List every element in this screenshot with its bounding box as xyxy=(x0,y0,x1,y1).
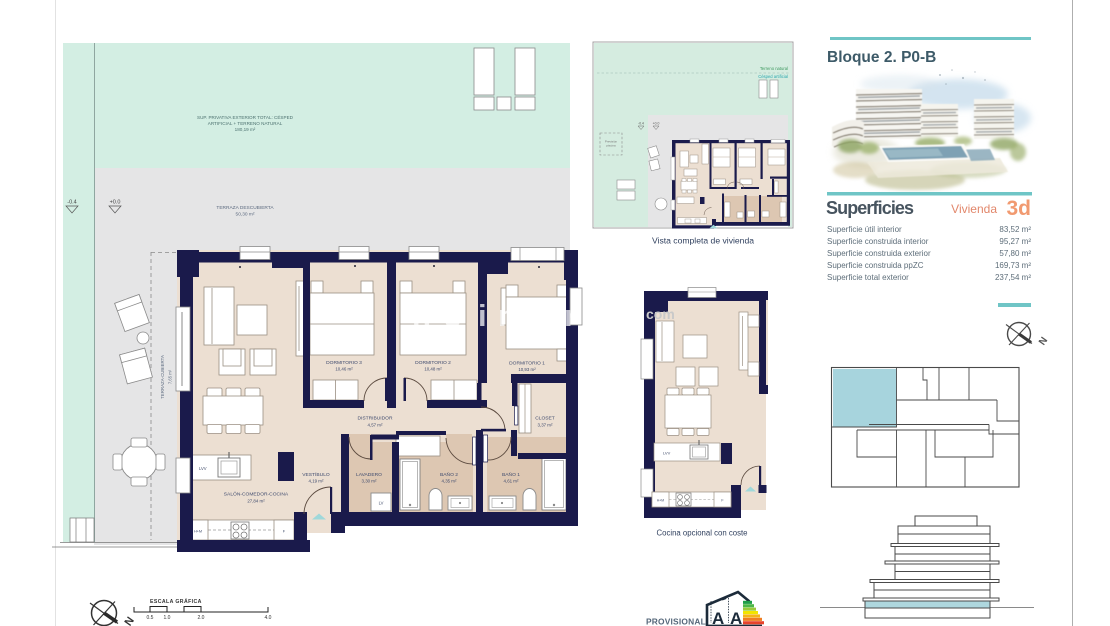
svg-text:v: v xyxy=(533,298,551,333)
svg-text:-0.4: -0.4 xyxy=(638,122,644,126)
svg-text:Superficie total exterior: Superficie total exterior xyxy=(827,273,909,282)
svg-text:Vivienda: Vivienda xyxy=(951,202,997,216)
svg-text:r: r xyxy=(564,298,576,333)
svg-text:n: n xyxy=(412,298,431,333)
svg-text:4,19 m²: 4,19 m² xyxy=(309,479,324,484)
svg-text:50,30 m²: 50,30 m² xyxy=(236,212,255,218)
svg-text:95,27 m²: 95,27 m² xyxy=(999,237,1031,246)
svg-text:Terreno natural: Terreno natural xyxy=(760,66,788,71)
svg-text:DORMITORIO 2: DORMITORIO 2 xyxy=(415,360,451,366)
svg-text:27,84 m²: 27,84 m² xyxy=(247,499,265,504)
svg-text:0.5: 0.5 xyxy=(147,615,154,621)
svg-text:Superficies: Superficies xyxy=(826,198,914,218)
svg-text:PROVISIONAL: PROVISIONAL xyxy=(646,617,706,626)
svg-text:180,19 m²: 180,19 m² xyxy=(235,127,256,132)
svg-text:57,80 m²: 57,80 m² xyxy=(999,249,1031,258)
svg-text:10,48 m²: 10,48 m² xyxy=(424,367,442,372)
svg-text:TERRAZA DESCUBIERTA: TERRAZA DESCUBIERTA xyxy=(216,205,274,211)
svg-text:com: com xyxy=(646,306,675,322)
svg-text:169,73 m²: 169,73 m² xyxy=(995,261,1031,270)
svg-text:+0.0: +0.0 xyxy=(110,200,121,206)
svg-text:SALÓN-COMEDOR-COCINA: SALÓN-COMEDOR-COCINA xyxy=(224,491,289,498)
svg-text:TERRAZA-CUBIERTA: TERRAZA-CUBIERTA xyxy=(160,355,165,399)
svg-text:CLOSET: CLOSET xyxy=(535,416,555,422)
svg-text:Vista completa de vivienda: Vista completa de vivienda xyxy=(652,236,754,246)
svg-text:piscina: piscina xyxy=(606,144,616,148)
svg-text:+0.0: +0.0 xyxy=(653,122,660,126)
svg-text:1.0: 1.0 xyxy=(164,615,171,621)
svg-text:DORMITORIO 3: DORMITORIO 3 xyxy=(326,360,362,366)
svg-text:4,57 m²: 4,57 m² xyxy=(368,423,383,428)
svg-text:Superficie útil interior: Superficie útil interior xyxy=(827,225,902,234)
svg-text:83,52 m²: 83,52 m² xyxy=(999,225,1031,234)
svg-text:4.0: 4.0 xyxy=(265,615,272,621)
svg-text:7,65 m²: 7,65 m² xyxy=(168,369,173,384)
svg-text:n: n xyxy=(498,298,517,333)
svg-text:Superficie construida ppZC: Superficie construida ppZC xyxy=(827,261,924,270)
svg-text:Cocina opcional con coste: Cocina opcional con coste xyxy=(656,529,747,538)
svg-text:SUP. PRIVATIVA EXTERIOR TOTAL:: SUP. PRIVATIVA EXTERIOR TOTAL: CÉSPED xyxy=(197,114,294,120)
svg-text:10,46 m²: 10,46 m² xyxy=(335,367,353,372)
svg-text:ESCALA GRÁFICA: ESCALA GRÁFICA xyxy=(150,598,202,605)
svg-text:BAÑO 1: BAÑO 1 xyxy=(502,471,520,478)
svg-text:LV: LV xyxy=(379,501,384,506)
svg-text:237,54 m²: 237,54 m² xyxy=(995,273,1031,282)
svg-text:LVV: LVV xyxy=(199,466,207,471)
svg-text:ARTIFICIAL + TERRENO NATURAL: ARTIFICIAL + TERRENO NATURAL xyxy=(208,121,283,126)
svg-text:Bloque 2. P0-B: Bloque 2. P0-B xyxy=(827,49,936,66)
svg-text:DORMITORIO 1: DORMITORIO 1 xyxy=(509,361,545,367)
svg-text:3,30 m²: 3,30 m² xyxy=(362,479,377,484)
svg-text:A: A xyxy=(730,609,742,626)
svg-text:10,93 m²: 10,93 m² xyxy=(518,367,536,372)
svg-text:BAÑO 2: BAÑO 2 xyxy=(440,471,458,478)
svg-text:H+M: H+M xyxy=(194,530,202,534)
svg-text:4,35 m²: 4,35 m² xyxy=(442,479,457,484)
svg-text:3d: 3d xyxy=(1006,197,1031,220)
svg-text:VESTÍBULO: VESTÍBULO xyxy=(302,471,330,478)
svg-text:A: A xyxy=(712,609,724,626)
svg-text:2.0: 2.0 xyxy=(198,615,205,621)
svg-text:3,37 m²: 3,37 m² xyxy=(538,423,553,428)
svg-text:LVV: LVV xyxy=(663,451,671,456)
svg-text:LAVADERO: LAVADERO xyxy=(356,472,382,478)
svg-text:H+M: H+M xyxy=(657,499,664,503)
svg-text:Superficie construida interior: Superficie construida interior xyxy=(827,237,929,246)
svg-text:s: s xyxy=(444,298,461,333)
svg-text:i: i xyxy=(478,298,487,333)
svg-text:DISTRIBUIDOR: DISTRIBUIDOR xyxy=(357,416,393,422)
svg-text:-0.4: -0.4 xyxy=(67,200,76,206)
svg-text:4,61 m²: 4,61 m² xyxy=(504,479,519,484)
svg-text:Césped artificial: Césped artificial xyxy=(758,74,788,79)
svg-text:Superficie construida exterior: Superficie construida exterior xyxy=(827,249,931,258)
